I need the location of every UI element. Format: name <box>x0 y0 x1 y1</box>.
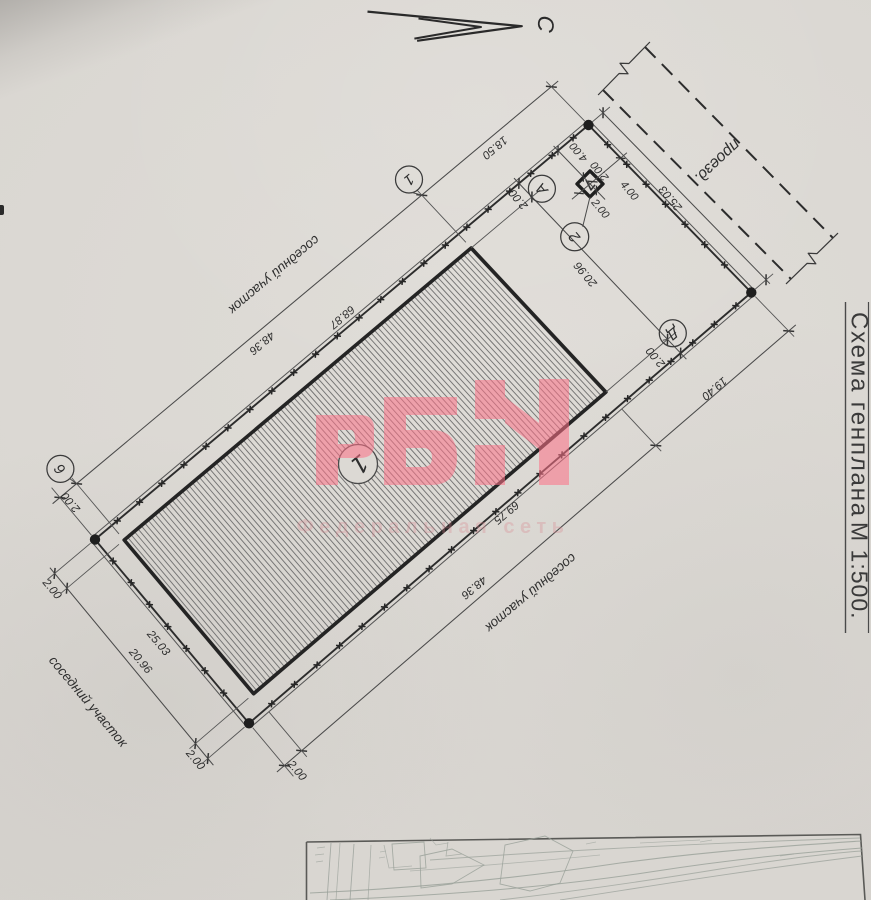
svg-text:Схема генплана: Схема генплана <box>846 312 871 518</box>
svg-text:М 1:500.: М 1:500. <box>847 522 871 620</box>
